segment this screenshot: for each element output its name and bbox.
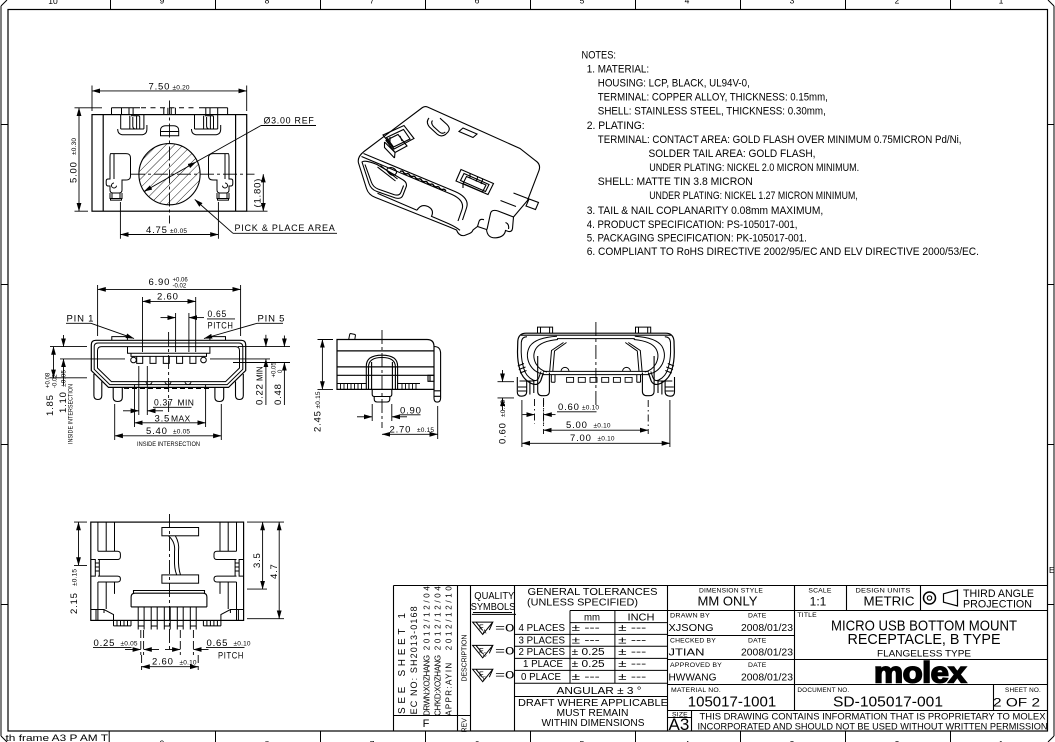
svg-text:2: 2 [895, 0, 900, 6]
svg-text:6: 6 [475, 0, 480, 6]
svg-text:± ---: ± --- [572, 635, 600, 646]
svg-text:TERMINAL: COPPER ALLOY, THICKN: TERMINAL: COPPER ALLOY, THICKNESS: 0.15m… [598, 92, 828, 104]
svg-text:DATE: DATE [748, 638, 767, 645]
svg-text:±0.05: ±0.05 [170, 228, 187, 235]
svg-text:0.60: 0.60 [558, 402, 580, 413]
svg-text:5. PACKAGING SPECIFICATION: PK: 5. PACKAGING SPECIFICATION: PK-105017-00… [587, 232, 807, 244]
svg-text:3.5: 3.5 [252, 552, 263, 568]
svg-text:± 0.25: ± 0.25 [572, 659, 606, 670]
svg-text:2.60: 2.60 [152, 657, 174, 668]
svg-text:±0.20: ±0.20 [173, 84, 190, 91]
svg-text:A: A [483, 629, 487, 635]
svg-text:2.15: 2.15 [69, 592, 80, 614]
svg-text:2008/01/23: 2008/01/23 [741, 622, 793, 634]
svg-text:5.00: 5.00 [69, 161, 80, 183]
svg-text:4. PRODUCT SPECIFICATION: PS-1: 4. PRODUCT SPECIFICATION: PS-105017-001, [587, 219, 798, 231]
svg-text:2008/01/23: 2008/01/23 [741, 672, 793, 684]
svg-text:±0.10: ±0.10 [598, 436, 615, 443]
svg-text:±0.13: ±0.13 [500, 400, 507, 417]
svg-text:3: 3 [790, 0, 795, 6]
svg-text:7: 7 [370, 0, 375, 6]
svg-text:8: 8 [265, 0, 270, 6]
svg-text:5: 5 [580, 0, 585, 6]
svg-text:DATE: DATE [748, 613, 767, 620]
svg-text:PIN 5: PIN 5 [258, 314, 286, 325]
svg-text:5.40: 5.40 [146, 426, 168, 437]
svg-text:5.00: 5.00 [566, 420, 588, 431]
svg-text:XJSONG: XJSONG [669, 622, 714, 634]
svg-text:INSIDE INTERSECTION: INSIDE INTERSECTION [137, 441, 200, 448]
svg-text:±0.10: ±0.10 [180, 659, 197, 666]
svg-text:2.45: 2.45 [313, 410, 324, 432]
svg-text:SHELL: STAINLESS STEEL, THICKN: SHELL: STAINLESS STEEL, THICKNESS: 0.30m… [598, 106, 826, 118]
svg-text:=0: =0 [495, 670, 514, 682]
svg-text:+0.06: +0.06 [173, 277, 189, 283]
svg-text:A3: A3 [669, 715, 690, 734]
svg-text:4.7: 4.7 [269, 563, 280, 579]
svg-text:+0.08: +0.08 [46, 372, 52, 388]
svg-text:MIN: MIN [178, 398, 195, 408]
svg-text:0.65: 0.65 [207, 638, 229, 649]
svg-text:SD-105017-001: SD-105017-001 [833, 694, 943, 711]
svg-text:3.5: 3.5 [155, 413, 171, 424]
svg-text:7.00: 7.00 [570, 433, 592, 444]
svg-text:± ---: ± --- [618, 672, 646, 683]
svg-text:MAX: MAX [171, 413, 191, 423]
svg-text:-0.02: -0.02 [173, 284, 187, 290]
svg-text:DIMENSION STYLE: DIMENSION STYLE [699, 588, 763, 595]
svg-text:PITCH: PITCH [218, 651, 244, 662]
svg-text:±0.05: ±0.05 [121, 641, 138, 648]
svg-text:TITLE: TITLE [797, 612, 817, 619]
svg-text:±0.10: ±0.10 [594, 423, 611, 430]
svg-text:± 0.25: ± 0.25 [572, 647, 606, 658]
svg-text:F: F [423, 718, 430, 730]
svg-text:NOTES:: NOTES: [582, 50, 617, 62]
svg-text:2. PLATING:: 2. PLATING: [587, 120, 645, 132]
svg-text:9: 9 [160, 0, 165, 6]
svg-text:0.25: 0.25 [94, 638, 116, 649]
svg-text:PIN 1: PIN 1 [67, 314, 95, 325]
svg-text:EC NO: SH2013-0168: EC NO: SH2013-0168 [409, 606, 419, 714]
svg-text:±0.10: ±0.10 [234, 641, 251, 648]
svg-text:0.48: 0.48 [273, 383, 284, 405]
svg-text:± ---: ± --- [618, 623, 646, 634]
svg-text:mm: mm [584, 613, 600, 624]
svg-text:1: 1 [999, 0, 1004, 6]
svg-text:± ---: ± --- [618, 647, 646, 658]
svg-text:3 PLACES: 3 PLACES [519, 635, 566, 646]
svg-text:7.50: 7.50 [149, 82, 171, 93]
svg-text:=0: =0 [495, 622, 514, 634]
svg-text:1.85: 1.85 [45, 394, 56, 416]
svg-text:±0.15: ±0.15 [72, 569, 79, 586]
svg-text:SHEET NO.: SHEET NO. [1005, 687, 1041, 694]
svg-text:±0.10: ±0.10 [582, 405, 599, 412]
svg-text:± ---: ± --- [618, 635, 646, 646]
svg-text:0.90: 0.90 [400, 405, 422, 416]
svg-text:-0.02: -0.02 [53, 374, 59, 388]
svg-text:(1.80): (1.80) [253, 178, 264, 208]
svg-text:0.60: 0.60 [498, 422, 509, 444]
svg-text:1:1: 1:1 [810, 595, 827, 609]
svg-text:SHELL: MATTE TIN 3.8 MICRON: SHELL: MATTE TIN 3.8 MICRON [598, 176, 753, 188]
svg-text:± ---: ± --- [618, 659, 646, 670]
svg-text:2 PLACES: 2 PLACES [519, 647, 566, 658]
svg-text:PROJECTION: PROJECTION [963, 598, 1032, 610]
svg-text:9: 9 [160, 739, 165, 742]
svg-text:th frame A3 P AM T: th frame A3 P AM T [6, 733, 109, 742]
svg-text:METRIC: METRIC [864, 595, 915, 609]
svg-text:105017-1001: 105017-1001 [688, 694, 776, 711]
svg-text:4.75: 4.75 [146, 225, 168, 236]
svg-text:C: C [483, 653, 487, 659]
svg-text:INCH: INCH [628, 613, 655, 624]
svg-text:DESCRIPTION: DESCRIPTION [462, 635, 469, 682]
svg-text:DRWN:XOZHANG: DRWN:XOZHANG [423, 655, 432, 716]
svg-text:TERMINAL: CONTACT AREA: GOLD F: TERMINAL: CONTACT AREA: GOLD FLASH OVER … [598, 134, 962, 146]
svg-text:QUALITY: QUALITY [474, 591, 515, 602]
svg-text:PITCH: PITCH [208, 321, 234, 332]
svg-text:SCALE: SCALE [808, 588, 832, 595]
svg-text:molex: molex [874, 657, 967, 690]
svg-text:0.37: 0.37 [154, 398, 174, 409]
svg-text:0.22: 0.22 [255, 383, 266, 405]
svg-text:UNDER PLATING: NICKEL 1.27 MIC: UNDER PLATING: NICKEL 1.27 MICRON MINIMU… [649, 190, 858, 202]
svg-text:APPROVED BY: APPROVED BY [670, 662, 722, 669]
svg-text:ANGULAR ± 3 °: ANGULAR ± 3 ° [557, 686, 642, 697]
svg-text:2.60: 2.60 [157, 292, 179, 303]
svg-text:UNDER PLATING: NICKEL 2.0 MICR: UNDER PLATING: NICKEL 2.0 MICRON MINIMUM… [649, 162, 859, 174]
svg-text:6.90: 6.90 [149, 277, 171, 288]
svg-text:1 PLACE: 1 PLACE [523, 659, 563, 670]
svg-text:(UNLESS SPECIFIED): (UNLESS SPECIFIED) [527, 597, 638, 609]
svg-text:HOUSING: LCP, BLACK, UL94V-0,: HOUSING: LCP, BLACK, UL94V-0, [598, 78, 750, 90]
svg-text:RECEPTACLE, B TYPE: RECEPTACLE, B TYPE [848, 631, 1001, 648]
svg-text:CH'KD:XOZHANG: CH'KD:XOZHANG [434, 655, 443, 716]
svg-text:6. COMPLIANT TO RoHS DIRECTIVE: 6. COMPLIANT TO RoHS DIRECTIVE 2002/95/E… [587, 246, 979, 258]
svg-text:P: P [483, 677, 487, 683]
svg-text:MIN: MIN [256, 366, 265, 381]
svg-text:CHECKED BY: CHECKED BY [670, 638, 716, 645]
svg-text:2008/01/23: 2008/01/23 [741, 647, 793, 659]
svg-text:0 PLACE: 0 PLACE [521, 672, 561, 683]
svg-text:E: E [1049, 566, 1054, 575]
svg-text:=0: =0 [495, 646, 514, 658]
svg-text:JTIAN: JTIAN [669, 647, 705, 659]
svg-text:+0.05: +0.05 [272, 362, 278, 378]
svg-text:DATE: DATE [748, 662, 767, 669]
svg-text:THIS DRAWING CONTAINS INFORMAT: THIS DRAWING CONTAINS INFORMATION THAT I… [700, 712, 1046, 722]
svg-text:Ø3.00 REF: Ø3.00 REF [264, 116, 315, 127]
svg-text:2 OF 2: 2 OF 2 [993, 698, 1040, 710]
svg-text:MM ONLY: MM ONLY [698, 595, 759, 609]
svg-text:±0.15: ±0.15 [315, 391, 322, 408]
svg-text:4 PLACES: 4 PLACES [519, 623, 566, 634]
svg-text:APPR:AYIN: APPR:AYIN [445, 663, 454, 716]
svg-text:±0.05: ±0.05 [173, 429, 190, 436]
svg-text:DRAWN BY: DRAWN BY [670, 613, 710, 620]
svg-text:± ---: ± --- [572, 672, 600, 683]
svg-text:3. TAIL & NAIL COPLANARITY 0.0: 3. TAIL & NAIL COPLANARITY 0.08mm MAXIMU… [587, 205, 824, 217]
svg-text:0.65: 0.65 [208, 309, 228, 320]
svg-text:INSIDE INTERSECTION: INSIDE INTERSECTION [68, 384, 75, 444]
svg-text:SYMBOLS: SYMBOLS [471, 602, 516, 613]
svg-text:1. MATERIAL:: 1. MATERIAL: [587, 64, 650, 76]
svg-text:SOLDER TAIL AREA: GOLD FLASH,: SOLDER TAIL AREA: GOLD FLASH, [649, 148, 816, 160]
svg-text:INCORPORATED AND SHOULD NOT BE: INCORPORATED AND SHOULD NOT BE USED WITH… [698, 722, 1048, 732]
svg-text:HWWANG: HWWANG [669, 672, 717, 684]
svg-text:±0.15: ±0.15 [417, 427, 434, 434]
svg-text:± ---: ± --- [572, 623, 600, 634]
svg-text:DESIGN UNITS: DESIGN UNITS [856, 588, 911, 595]
svg-text:WITHIN DIMENSIONS: WITHIN DIMENSIONS [542, 718, 645, 729]
svg-text:±0.30: ±0.30 [71, 138, 78, 155]
svg-text:2.70: 2.70 [390, 424, 412, 435]
svg-text:4: 4 [685, 0, 690, 6]
svg-text:REV: REV [462, 718, 469, 733]
svg-text:PICK & PLACE AREA: PICK & PLACE AREA [235, 223, 336, 234]
svg-text:10: 10 [48, 0, 58, 6]
